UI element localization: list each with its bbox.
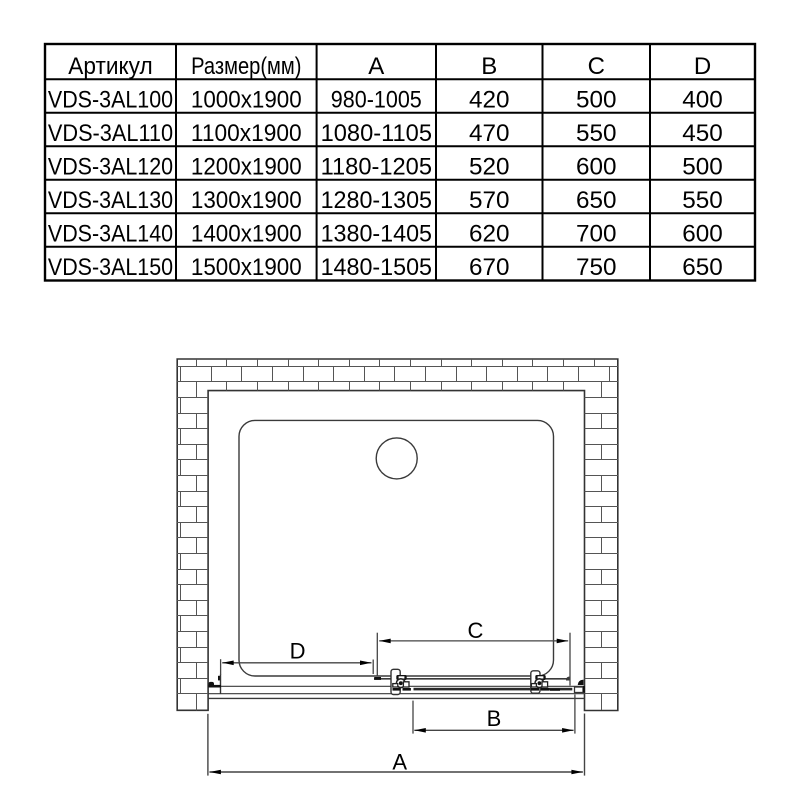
svg-text:Размер(мм): Размер(мм)	[191, 53, 301, 80]
svg-text:D: D	[694, 53, 711, 80]
svg-text:1400x1900: 1400x1900	[191, 220, 302, 247]
svg-text:750: 750	[576, 254, 617, 281]
svg-text:1480-1505: 1480-1505	[321, 254, 432, 281]
svg-text:400: 400	[682, 86, 723, 113]
svg-text:450: 450	[682, 120, 723, 147]
svg-text:C: C	[588, 53, 605, 80]
svg-text:550: 550	[576, 120, 617, 147]
svg-text:600: 600	[682, 220, 723, 247]
svg-text:600: 600	[576, 153, 617, 180]
svg-text:1280-1305: 1280-1305	[321, 187, 432, 214]
svg-text:650: 650	[682, 254, 723, 281]
svg-text:570: 570	[469, 187, 510, 214]
svg-text:B: B	[487, 706, 502, 731]
svg-text:1380-1405: 1380-1405	[321, 220, 432, 247]
svg-text:700: 700	[576, 220, 617, 247]
svg-text:1080-1105: 1080-1105	[321, 120, 432, 147]
svg-text:500: 500	[576, 86, 617, 113]
svg-text:A: A	[392, 750, 407, 775]
svg-text:1100x1900: 1100x1900	[191, 120, 302, 147]
svg-text:980-1005: 980-1005	[331, 86, 422, 113]
svg-text:520: 520	[469, 153, 510, 180]
svg-text:VDS-3AL140: VDS-3AL140	[48, 220, 173, 247]
svg-text:620: 620	[469, 220, 510, 247]
svg-text:550: 550	[682, 187, 723, 214]
svg-text:420: 420	[469, 86, 510, 113]
svg-text:670: 670	[469, 254, 510, 281]
svg-text:B: B	[481, 53, 497, 80]
svg-text:1200x1900: 1200x1900	[191, 153, 302, 180]
svg-text:A: A	[368, 53, 384, 80]
svg-text:VDS-3AL150: VDS-3AL150	[48, 254, 173, 281]
svg-text:1180-1205: 1180-1205	[321, 153, 432, 180]
svg-text:VDS-3AL100: VDS-3AL100	[48, 86, 173, 113]
svg-text:D: D	[290, 639, 306, 664]
svg-text:470: 470	[469, 120, 510, 147]
svg-text:C: C	[468, 618, 484, 643]
svg-text:VDS-3AL130: VDS-3AL130	[48, 187, 173, 214]
svg-text:1300x1900: 1300x1900	[191, 187, 302, 214]
svg-text:650: 650	[576, 187, 617, 214]
svg-text:VDS-3AL120: VDS-3AL120	[48, 153, 173, 180]
svg-text:500: 500	[682, 153, 723, 180]
svg-text:VDS-3AL110: VDS-3AL110	[48, 120, 173, 147]
svg-text:1000x1900: 1000x1900	[191, 86, 302, 113]
svg-text:Артикул: Артикул	[68, 53, 152, 80]
svg-text:1500x1900: 1500x1900	[191, 254, 302, 281]
